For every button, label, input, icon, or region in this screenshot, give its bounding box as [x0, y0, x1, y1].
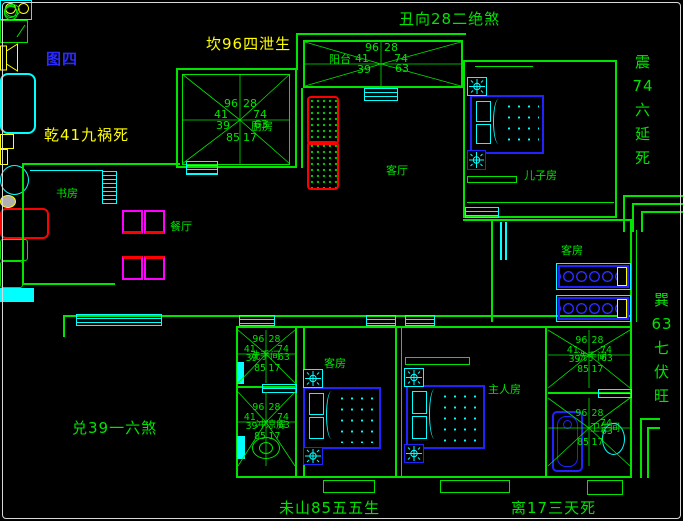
compass-number-bottom_left: 85	[254, 364, 266, 373]
compass-number-bottom_left: 85	[577, 438, 589, 447]
compass-number-bottom_right: 17	[592, 365, 604, 374]
compass-number-lower_left: 39	[246, 422, 258, 431]
compass-number-bottom_left: 85	[226, 132, 240, 143]
compass-rose	[305, 42, 461, 86]
dining-chair	[144, 210, 165, 234]
compass-number-bottom_right: 17	[592, 438, 604, 447]
dining-table	[0, 208, 49, 239]
compass-number-lower_left: 39	[216, 120, 230, 131]
compass-rose	[548, 398, 630, 466]
compass-number-lower_right: 63	[278, 421, 290, 430]
compass-rose	[182, 74, 290, 164]
compass-number-lower_right: 63	[601, 427, 613, 436]
compass-number-lower_right: 63	[395, 63, 409, 74]
compass-number-lower_left: 39	[569, 355, 581, 364]
compass-number-bottom_right: 17	[243, 132, 257, 143]
compass-number-bottom_right: 17	[269, 432, 281, 441]
compass-rose	[548, 330, 630, 388]
floor-plan-canvas: 图四 坎96四泄生 丑向28二绝煞 乾41九祸死 兑39一六煞 未山85五五生 …	[0, 0, 683, 521]
dining-chair	[122, 210, 143, 234]
compass-number-bottom_left: 85	[254, 432, 266, 441]
basin-bowl	[4, 6, 18, 20]
compass-number-lower_right: 63	[601, 354, 613, 363]
compass-number-top_left: 96	[575, 409, 587, 418]
dining-chair	[144, 256, 165, 280]
compass-number-lower_left: 39	[246, 354, 258, 363]
compass-number-lower_right: 63	[254, 119, 268, 130]
compass-number-bottom_right: 17	[269, 364, 281, 373]
compass-number-lower_left: 39	[357, 64, 371, 75]
compass-number-lower_right: 63	[278, 353, 290, 362]
compass-number-bottom_left: 85	[577, 365, 589, 374]
dining-chair	[122, 256, 143, 280]
